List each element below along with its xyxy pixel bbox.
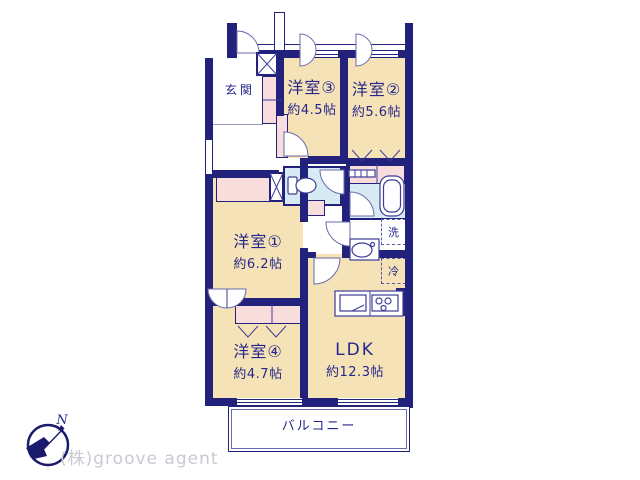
ldk-size: 約12.3帖 (305, 366, 405, 379)
fixtures-layer (0, 0, 640, 480)
room2-size: 約5.6帖 (346, 106, 407, 119)
company-watermark: (株)groove agent (60, 444, 219, 469)
room2-closet-fold-icon (352, 150, 400, 161)
room1-door-arc (326, 222, 350, 246)
room2-window-swing-icon (356, 34, 372, 66)
pipe-shaft-icon (257, 53, 277, 75)
toilet-door-arc (320, 170, 344, 194)
left-wall-double-swing-icon (208, 289, 246, 308)
room3-size: 約4.5帖 (282, 104, 342, 117)
ldk-name: LDK (305, 342, 405, 359)
ldk-door-arc (314, 258, 340, 284)
room3-door-arc (284, 132, 308, 156)
room3-window-swing-icon (300, 34, 316, 66)
entrance-door-arc (237, 31, 259, 53)
entrance-label: 玄関 (213, 84, 267, 96)
room1-name: 洋室① (213, 234, 303, 250)
toilet-icon (288, 177, 316, 194)
bath-door-arc (350, 192, 374, 216)
compass-north-label: N (54, 414, 70, 427)
balcony-label: バルコニー (228, 420, 410, 433)
room4-name: 洋室④ (213, 344, 303, 360)
room1-size: 約6.2帖 (213, 258, 303, 271)
kitchen-counter-icon (335, 291, 403, 316)
room4-size: 約4.7帖 (213, 368, 303, 381)
room2-name: 洋室② (346, 82, 407, 98)
washbasin-icon (350, 239, 379, 260)
floorplan-canvas: 洗 冷 (0, 0, 640, 480)
pipe-shaft2-icon (270, 173, 283, 201)
room4-closet-fold-icon (238, 326, 286, 337)
room3-name: 洋室③ (282, 80, 342, 96)
